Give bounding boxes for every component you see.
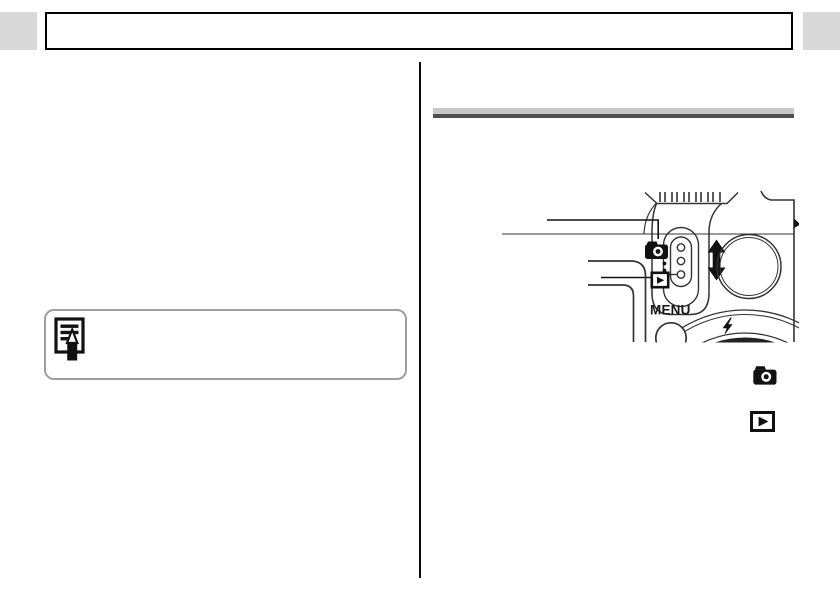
left-edge-tab xyxy=(0,12,37,50)
menu-button-label: MENU xyxy=(650,303,691,318)
right-edge-tab xyxy=(803,12,840,50)
camera-icon xyxy=(753,366,777,385)
lcd-bezel-corner xyxy=(588,261,646,342)
up-down-arrow-icon xyxy=(708,240,726,281)
column-divider xyxy=(419,62,421,578)
note-box xyxy=(44,309,407,380)
playback-icon xyxy=(652,273,668,287)
section-rule-dark xyxy=(433,114,794,118)
zoom-button-circle xyxy=(717,235,781,299)
manual-page: { "header": { "left_tab": "edge-tab", "r… xyxy=(0,0,840,596)
camera-controls-figure: MENU xyxy=(495,188,805,344)
shooting-mode-callout-line xyxy=(547,220,658,239)
flash-bolt-icon xyxy=(723,318,733,336)
menu-button: MENU xyxy=(650,303,691,345)
camera-icon xyxy=(645,242,668,260)
page-title-box xyxy=(45,12,793,50)
playback-icon xyxy=(750,411,775,432)
memo-pencil-icon xyxy=(54,317,86,362)
